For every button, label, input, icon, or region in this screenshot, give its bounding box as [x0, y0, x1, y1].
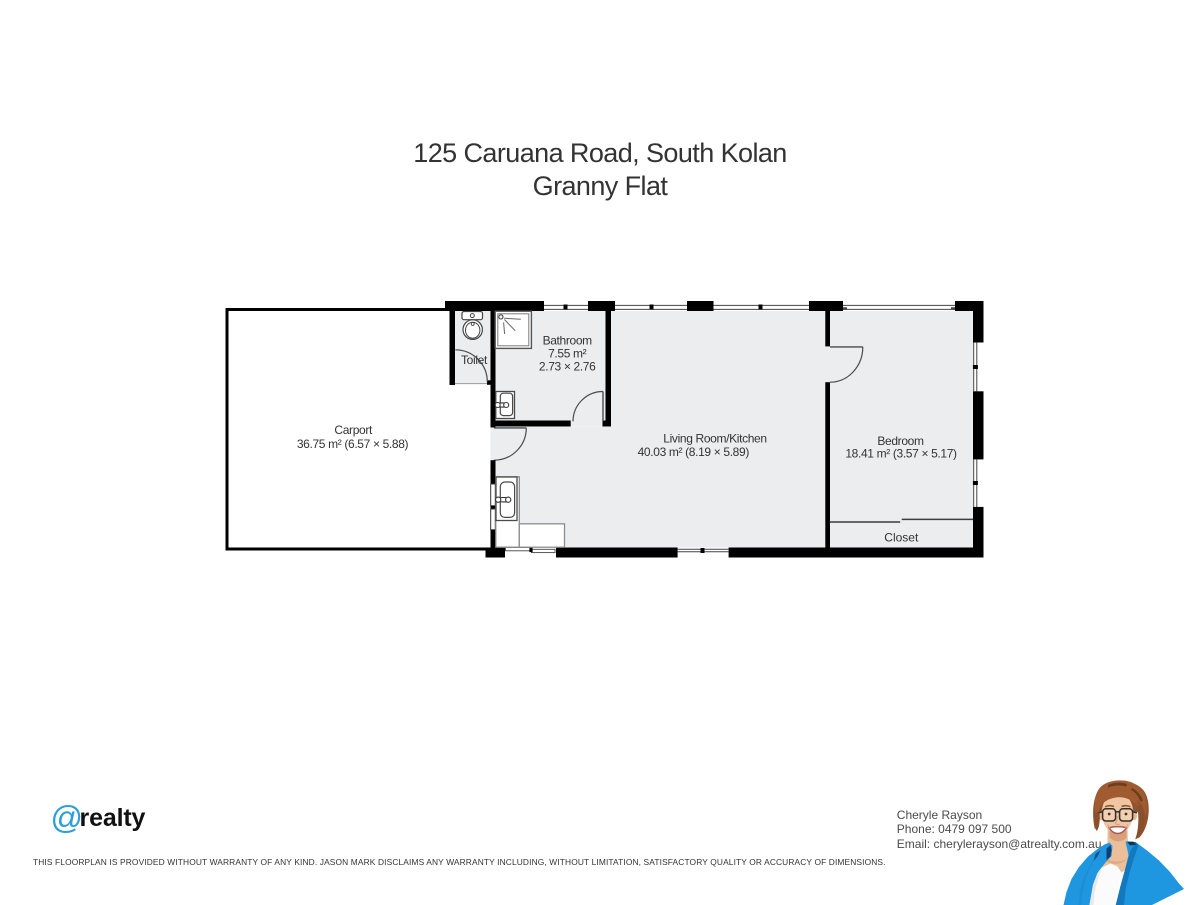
- svg-text:Living Room/Kitchen: Living Room/Kitchen: [663, 432, 766, 446]
- svg-text:40.03 m² (8.19 × 5.89): 40.03 m² (8.19 × 5.89): [638, 445, 750, 459]
- svg-text:Bathroom: Bathroom: [543, 334, 593, 348]
- svg-text:7.55 m²: 7.55 m²: [548, 347, 587, 361]
- svg-text:36.75 m² (6.57 × 5.88): 36.75 m² (6.57 × 5.88): [297, 437, 409, 451]
- svg-text:realty: realty: [80, 804, 146, 832]
- svg-text:Toilet: Toilet: [461, 353, 488, 367]
- svg-text:2.73 × 2.76: 2.73 × 2.76: [539, 360, 596, 374]
- svg-text:Closet: Closet: [884, 531, 919, 545]
- svg-text:@: @: [50, 800, 82, 836]
- svg-text:18.41 m² (3.57 × 5.17): 18.41 m² (3.57 × 5.17): [845, 447, 957, 461]
- svg-text:Carport: Carport: [334, 423, 373, 437]
